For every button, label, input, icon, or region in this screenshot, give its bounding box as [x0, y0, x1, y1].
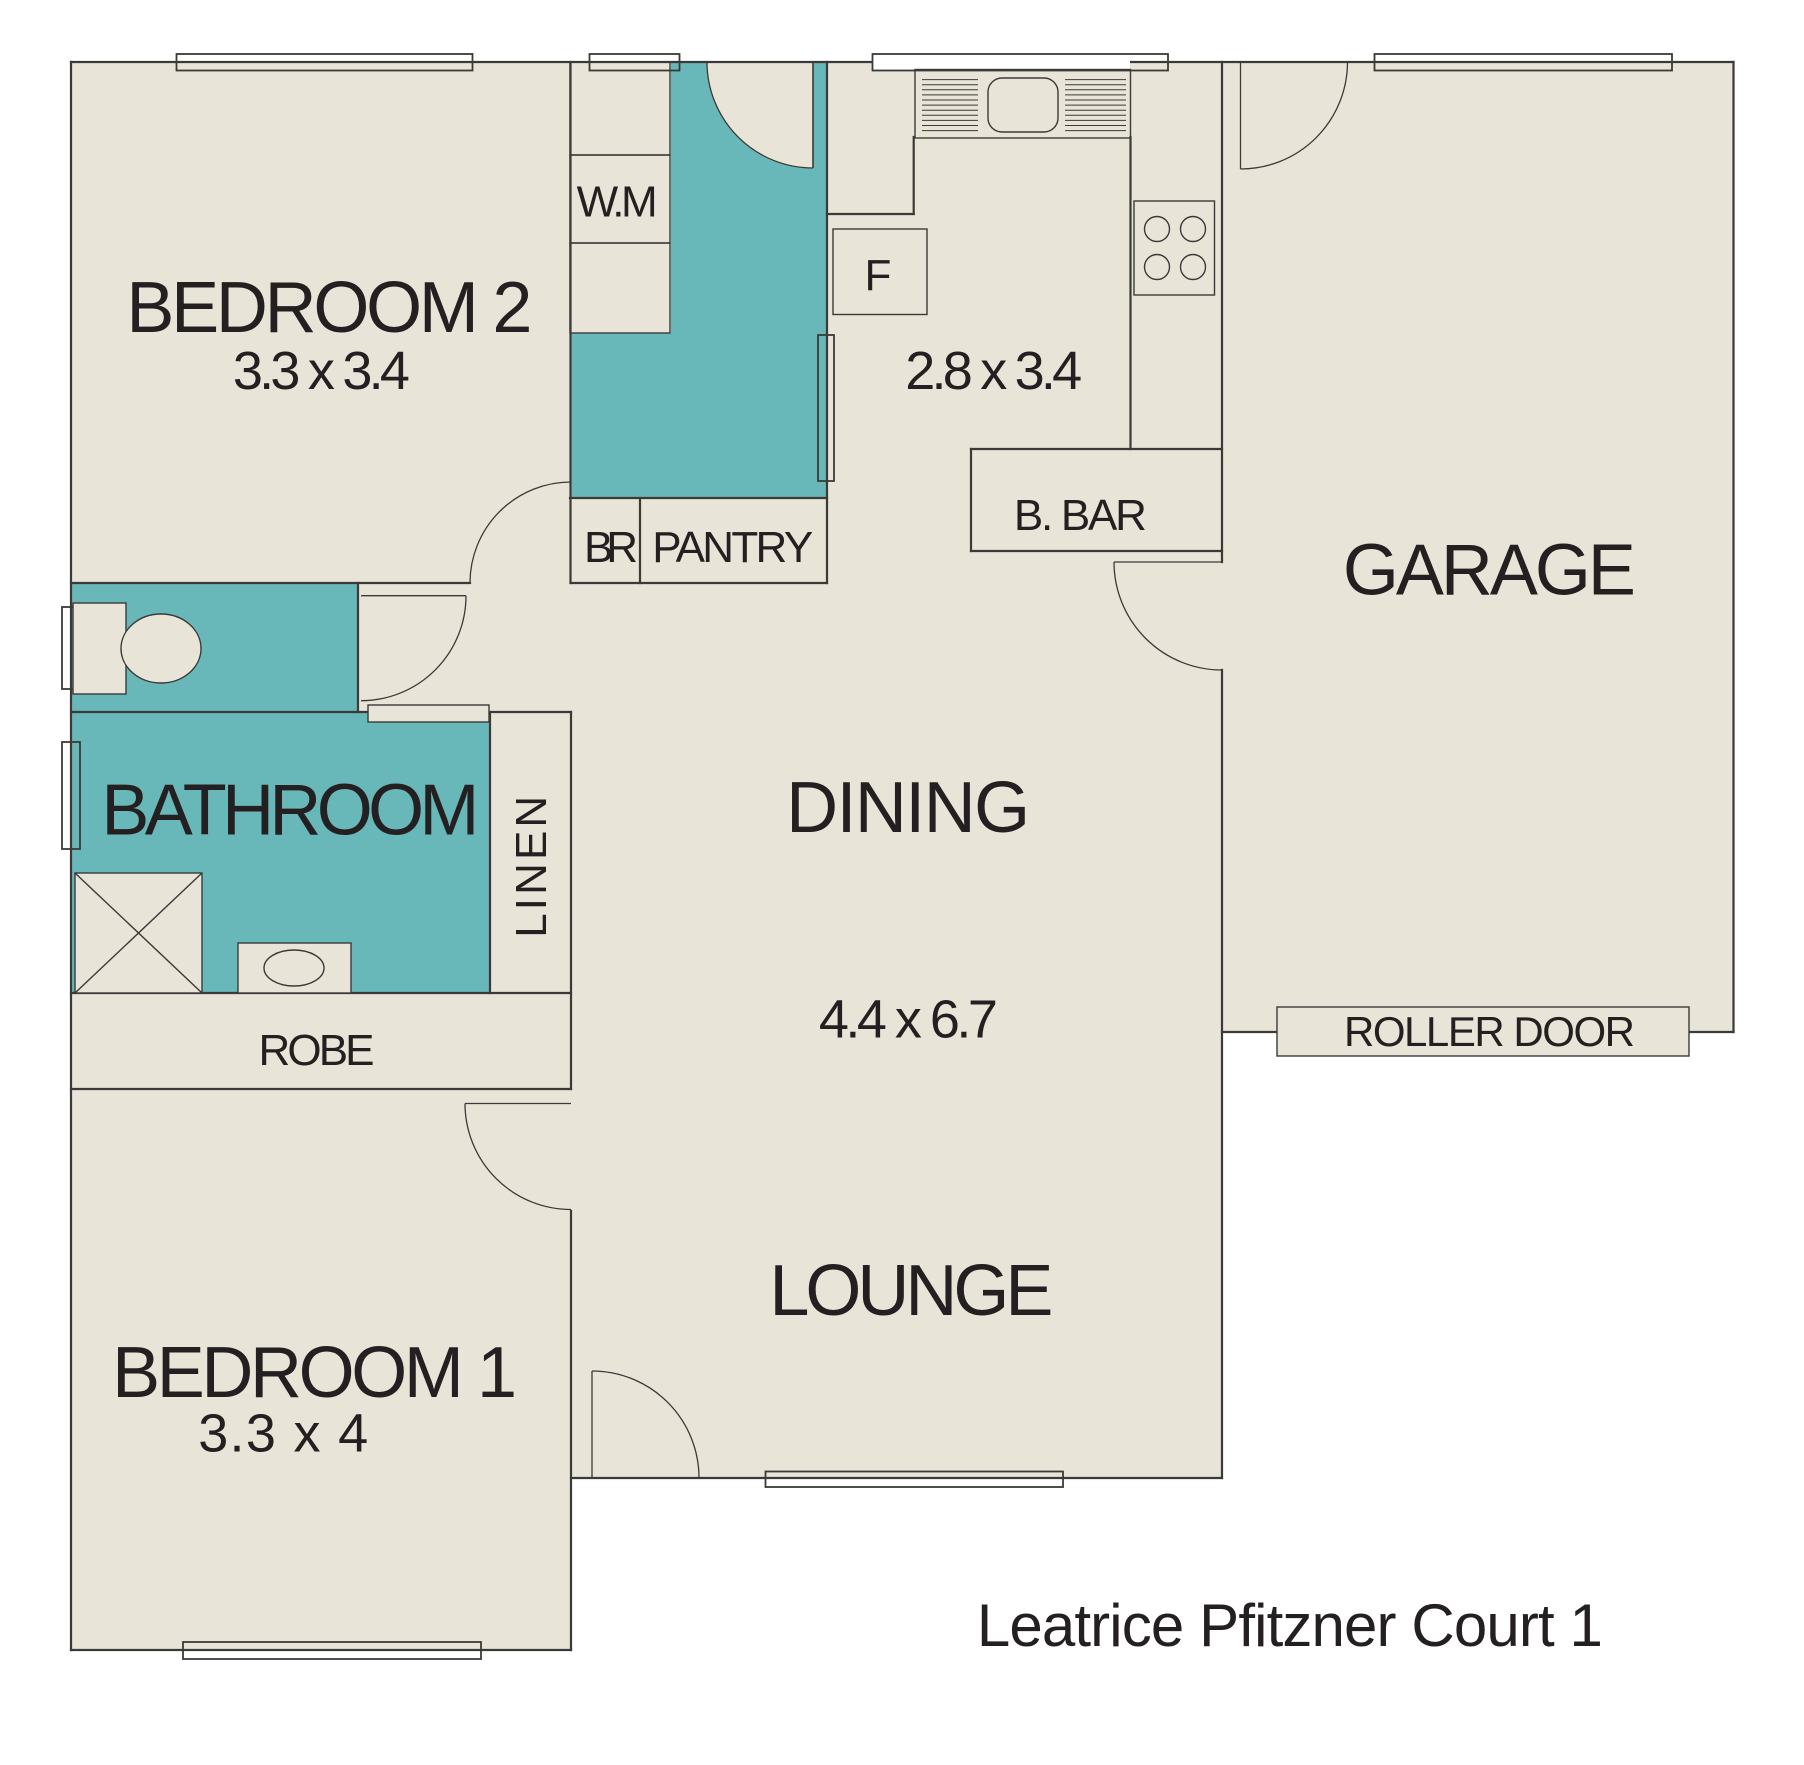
svg-text:2.8 x 3.4: 2.8 x 3.4	[905, 341, 1082, 401]
svg-text:Leatrice Pfitzner Court 1: Leatrice Pfitzner Court 1	[977, 1592, 1603, 1659]
svg-text:3.3 x 4: 3.3 x 4	[198, 1404, 368, 1464]
svg-text:BEDROOM 1: BEDROOM 1	[112, 1333, 517, 1413]
svg-text:F: F	[865, 251, 892, 300]
svg-text:4.4 x 6.7: 4.4 x 6.7	[819, 990, 998, 1050]
svg-text:GARAGE: GARAGE	[1343, 530, 1636, 610]
svg-text:LINEN: LINEN	[507, 796, 556, 938]
svg-text:ROLLER DOOR: ROLLER DOOR	[1344, 1008, 1635, 1055]
svg-text:DINING: DINING	[786, 768, 1030, 848]
svg-text:BR: BR	[584, 523, 638, 572]
svg-text:LOUNGE: LOUNGE	[769, 1251, 1053, 1331]
svg-text:B. BAR: B. BAR	[1014, 491, 1147, 540]
svg-text:W.M: W.M	[577, 178, 658, 227]
svg-text:ROBE: ROBE	[259, 1026, 375, 1075]
svg-text:BATHROOM: BATHROOM	[101, 771, 479, 851]
svg-text:BEDROOM 2: BEDROOM 2	[126, 268, 532, 348]
svg-text:PANTRY: PANTRY	[652, 523, 813, 572]
svg-text:3.3 x 3.4: 3.3 x 3.4	[233, 341, 410, 401]
